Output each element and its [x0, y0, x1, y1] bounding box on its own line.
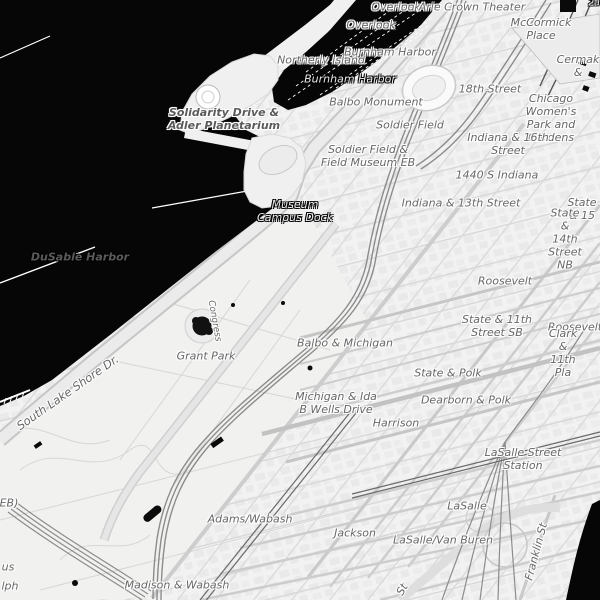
map-label: Northerly Island	[277, 55, 365, 68]
map-label: State & Polk	[414, 368, 481, 381]
map-canvas[interactable]: OverlookOverlookArie Crown TheaterMcCorm…	[0, 0, 600, 600]
map-label: Roosevelt	[548, 322, 600, 335]
map-label: Arie Crown Theater	[419, 2, 526, 15]
map-label: 18th Street	[459, 84, 521, 97]
map-label: Grant Park	[177, 351, 236, 364]
map-label: Michigan & Ida B Wells Drive	[295, 391, 377, 417]
map-label: South Lake Shore Dr.	[14, 353, 121, 434]
map-label: State & 11th Street SB	[462, 314, 532, 340]
map-label: Clark & 11th Pla	[545, 328, 582, 380]
map-label: McCormick Place	[511, 17, 572, 43]
map-label: Madison & Wabash	[125, 580, 230, 593]
map-label: 2a	[588, 0, 599, 9]
map-label: Harrison	[373, 418, 420, 431]
map-label: Soldier Field & Field Museum EB	[321, 144, 415, 170]
map-label: St	[395, 582, 412, 598]
map-label: LaSalle	[447, 501, 486, 514]
map-label: 1440 S Indiana	[456, 170, 539, 183]
map-label: Cermak &	[557, 54, 600, 80]
map-label: Indiana & 13th Street	[402, 198, 521, 211]
map-label: EB)	[0, 498, 18, 511]
map-label: lph	[1, 581, 18, 594]
map-label: LaSalle Street Station	[485, 447, 562, 473]
map-label: State & 15	[567, 197, 596, 223]
map-label: Soldier Field	[376, 120, 444, 133]
map-label: State & 14th Street NB	[548, 208, 583, 273]
map-label: DuSable Harbor	[31, 252, 129, 265]
map-label: Overlook	[346, 20, 395, 33]
map-label: Museum Campus Dock	[257, 199, 333, 225]
map-labels: OverlookOverlookArie Crown TheaterMcCorm…	[0, 0, 600, 600]
map-label: Burnham Harbor	[304, 74, 396, 87]
map-label: Adams/Wabash	[208, 514, 293, 527]
map-label: Balbo & Michigan	[297, 338, 393, 351]
map-label: Jackson	[334, 528, 376, 541]
map-label: Chicago Women's Park and Gardens	[526, 93, 577, 145]
map-label: Balbo Monument	[329, 97, 422, 110]
map-label: LaSalle/Van Buren	[393, 535, 493, 548]
map-label: Dearborn & Polk	[421, 395, 511, 408]
map-label: us	[2, 562, 15, 575]
map-label: Roosevelt	[478, 276, 532, 289]
map-label: Congress	[205, 299, 223, 342]
map-label: Overlook	[371, 2, 420, 15]
map-label: Indiana & 16th Street	[462, 132, 554, 158]
map-label: Burnham Harbor	[344, 47, 436, 60]
map-label: Solidarity Drive & Adler Planetarium	[168, 107, 280, 133]
map-label: Franklin St	[523, 522, 551, 582]
